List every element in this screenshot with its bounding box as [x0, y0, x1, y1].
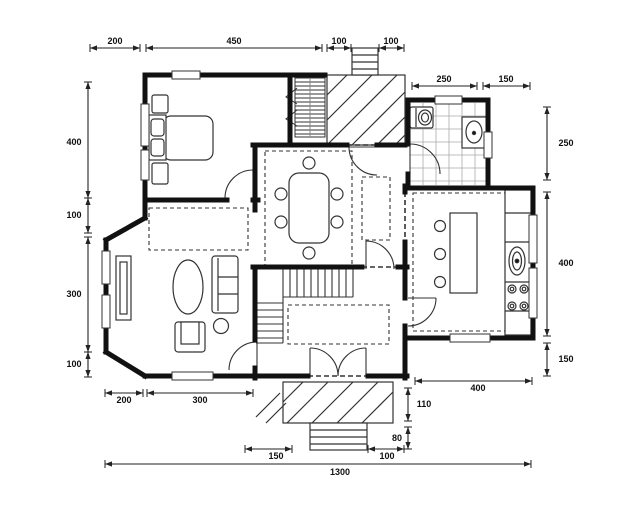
nightstand-icon — [152, 163, 168, 184]
pillow-icon — [151, 139, 164, 156]
window-icon — [172, 372, 213, 380]
dining-chair-icon — [331, 188, 343, 200]
armchair-seat — [181, 322, 199, 344]
bar-stool-icon — [435, 249, 446, 260]
dining-chair-icon — [275, 216, 287, 228]
dimension-label: 250 — [436, 74, 451, 84]
dimension: 110 — [404, 388, 431, 421]
dimension: 400 — [415, 377, 532, 393]
dimension-label: 1300 — [330, 467, 350, 477]
dimension: 300 — [147, 389, 253, 405]
dimension-label: 250 — [558, 138, 573, 148]
bar-stool-icon — [435, 277, 446, 288]
dimension: 400 — [66, 82, 92, 198]
coffee-table-icon — [173, 260, 203, 314]
staircase-icon — [256, 269, 353, 343]
dimension-label: 150 — [558, 354, 573, 364]
window-icon — [102, 251, 110, 284]
dimension-label: 400 — [66, 137, 81, 147]
dimension-label: 400 — [470, 383, 485, 393]
dimension-label: 200 — [107, 36, 122, 46]
dimension-label: 300 — [192, 395, 207, 405]
dimension-label: 200 — [116, 395, 131, 405]
dining-hall-door-icon — [366, 241, 394, 269]
dining-nook-door-icon — [349, 147, 377, 175]
kitchen-furniture — [435, 190, 532, 335]
window-icon — [450, 334, 490, 342]
dimension-label: 400 — [558, 258, 573, 268]
window-icon — [529, 268, 537, 318]
dining-table-icon — [289, 173, 329, 243]
dimension: 450 — [146, 36, 322, 52]
window-icon — [484, 132, 492, 158]
chimney-icon — [327, 48, 405, 145]
floor-plan-drawing: 2004501001002501504001003001002504001502… — [0, 0, 630, 520]
dimension: 150 — [543, 343, 574, 376]
side-table-icon — [214, 319, 229, 334]
dimension: 100 — [66, 352, 92, 377]
dimension: 80 — [392, 427, 412, 449]
dimension-label: 100 — [383, 36, 398, 46]
dimension-label: 110 — [417, 399, 432, 409]
dimension: 100 — [66, 198, 92, 233]
entry-double-door-icon — [310, 348, 366, 376]
dimension: 150 — [483, 74, 530, 90]
dimension: 200 — [105, 389, 143, 405]
dining-chair-icon — [275, 188, 287, 200]
dining-chair-icon — [303, 157, 315, 169]
living-furniture — [116, 256, 238, 352]
bedroom-door-icon — [225, 170, 253, 198]
window-icon — [141, 150, 149, 180]
dimension-label: 450 — [226, 36, 241, 46]
dimension-label: 150 — [498, 74, 513, 84]
dimension-label: 100 — [379, 451, 394, 461]
bar-stool-icon — [435, 221, 446, 232]
dimension: 250 — [412, 74, 477, 90]
sofa-icon — [212, 256, 238, 313]
window-icon — [435, 96, 462, 104]
double-bed-icon — [163, 116, 213, 160]
dimension-label: 100 — [66, 359, 81, 369]
bathroom-door-icon — [410, 144, 440, 174]
dimension-label: 80 — [392, 433, 402, 443]
dimension: 300 — [66, 237, 92, 352]
dimension: 150 — [245, 445, 292, 461]
porch-icon — [256, 382, 393, 423]
dining-chair-icon — [331, 216, 343, 228]
dimension: 400 — [543, 192, 574, 336]
dimension-label: 150 — [268, 451, 283, 461]
dimension-label: 300 — [66, 289, 81, 299]
window-icon — [141, 104, 149, 146]
window-icon — [529, 215, 537, 263]
dimension: 100 — [379, 36, 404, 52]
dimension: 1300 — [105, 460, 531, 477]
nightstand-icon — [152, 95, 168, 113]
window-icon — [102, 295, 110, 328]
dimension: 250 — [543, 107, 574, 180]
kitchen-island-icon — [450, 213, 477, 293]
floor-plan-page: 2004501001002501504001003001002504001502… — [0, 0, 630, 520]
dimension-label: 100 — [66, 210, 81, 220]
dimension: 200 — [90, 36, 140, 52]
pillow-icon — [151, 119, 164, 136]
porch-steps-icon — [310, 423, 367, 450]
kitchen-door-icon — [408, 298, 436, 326]
dining-furniture — [275, 157, 343, 259]
dining-chair-icon — [303, 247, 315, 259]
dimension-label: 100 — [331, 36, 346, 46]
window-icon — [172, 71, 200, 79]
dimension: 100 — [368, 445, 404, 461]
bedroom-furniture — [149, 95, 213, 184]
dimension: 100 — [327, 36, 351, 52]
